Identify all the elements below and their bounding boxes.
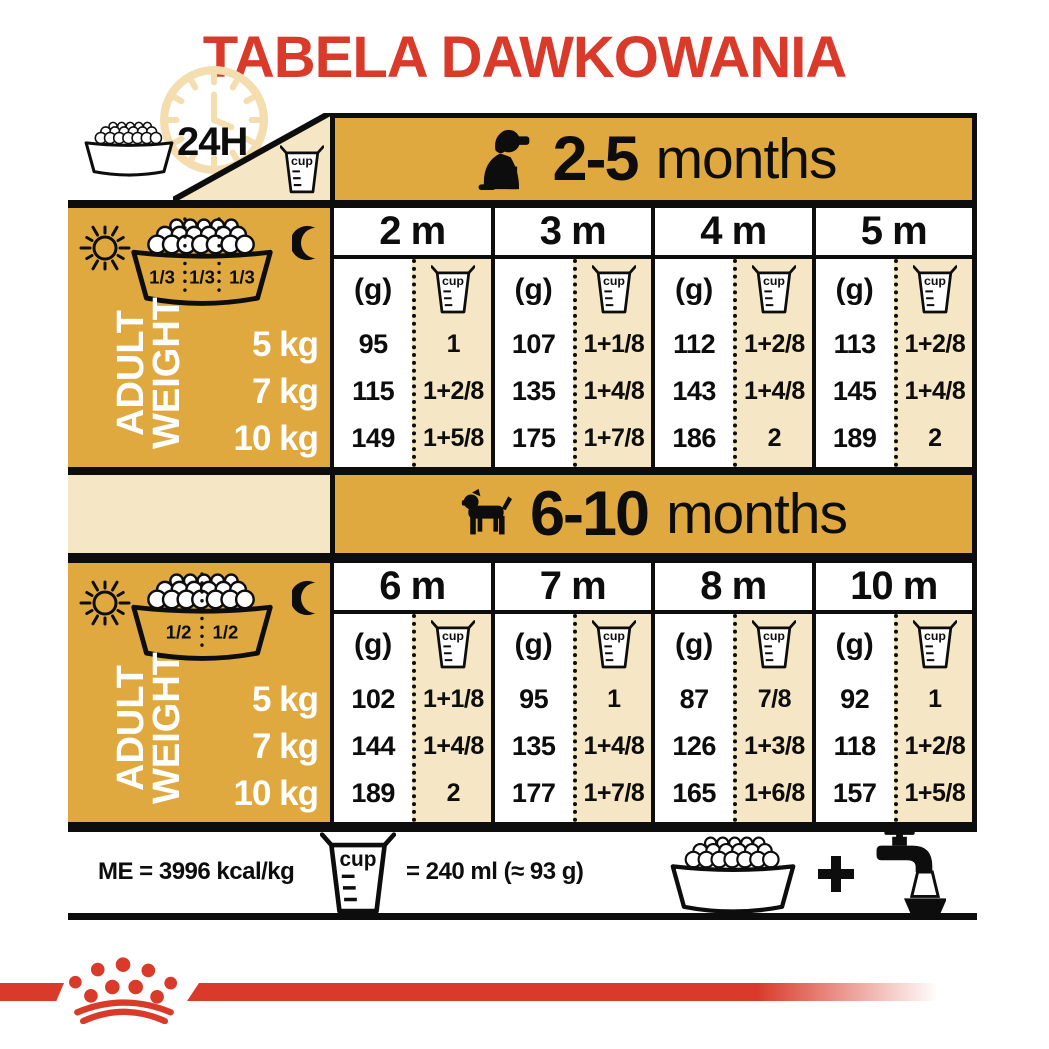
feeding-table-6-10-months: 1/21/2ADULTWEIGHT5 kg7 kg10 kg6 m(g)1021… — [68, 563, 977, 832]
svg-text:cup: cup — [291, 154, 313, 168]
cup-icon: cup — [592, 263, 636, 317]
cups-value: 1+6/8 — [744, 779, 805, 808]
grams-unit-label: (g) — [675, 273, 713, 307]
month-body: (g)102144189 cup1+1/81+4/82 — [334, 614, 491, 822]
grams-subcolumn: (g)87126165 — [655, 614, 733, 822]
daily-ration-label: 24H — [177, 120, 247, 165]
grams-unit-label: (g) — [835, 628, 873, 662]
month-body: (g)95115149 cup11+2/81+5/8 — [334, 259, 491, 467]
moon-icon — [292, 222, 328, 264]
adult-weight-label-line: ADULT — [113, 636, 149, 820]
grams-value: 149 — [351, 423, 395, 454]
weight-row-label: 7 kg — [252, 723, 318, 770]
grams-subcolumn: (g)107135175 — [495, 259, 573, 467]
grams-subcolumn: (g)92118157 — [816, 614, 894, 822]
grams-unit-label: (g) — [675, 628, 713, 662]
cups-value: 1+1/8 — [583, 330, 644, 359]
grams-subcolumn: (g)102144189 — [334, 614, 412, 822]
month-header: 10 m — [816, 563, 973, 614]
royal-canin-crown-logo — [60, 952, 188, 1024]
svg-text:cup: cup — [442, 274, 464, 288]
grams-value: 143 — [672, 376, 716, 407]
cups-value: 1+4/8 — [583, 377, 644, 406]
svg-text:cup: cup — [763, 629, 785, 643]
month-body: (g)92118157 cup11+2/81+5/8 — [816, 614, 973, 822]
cups-value: 1+4/8 — [583, 732, 644, 761]
brand-stripe-right — [187, 983, 978, 1001]
svg-text:1/3: 1/3 — [229, 266, 255, 287]
band-spacer — [68, 475, 330, 553]
cups-subcolumn: cup1+1/81+4/82 — [412, 614, 490, 822]
month-header: 7 m — [495, 563, 652, 614]
food-bowl-24h-icon — [80, 116, 178, 182]
cups-value: 2 — [928, 424, 941, 453]
grams-value: 102 — [351, 684, 395, 715]
moon-icon — [292, 577, 328, 619]
cup-icon: cup — [431, 263, 475, 317]
month-column: 4 m(g)112143186 cup1+2/81+4/82 — [651, 208, 812, 467]
grams-value: 144 — [351, 731, 395, 762]
cups-value: 1+4/8 — [904, 377, 965, 406]
grams-value: 186 — [672, 423, 716, 454]
cups-value: 1+5/8 — [423, 424, 484, 453]
month-column: 2 m(g)95115149 cup11+2/81+5/8 — [330, 208, 491, 467]
month-columns: 6 m(g)102144189 cup1+1/81+4/827 m(g)9513… — [330, 563, 972, 822]
grams-subcolumn: (g)95135177 — [495, 614, 573, 822]
month-header: 6 m — [334, 563, 491, 614]
age-band-6-10-months-row: 6-10 months — [68, 475, 977, 563]
month-columns: 2 m(g)95115149 cup11+2/81+5/83 m(g)10713… — [330, 208, 972, 467]
month-column: 3 m(g)107135175 cup1+1/81+4/81+7/8 — [491, 208, 652, 467]
grams-unit-label: (g) — [354, 628, 392, 662]
cups-subcolumn: cup1+2/81+4/82 — [733, 259, 811, 467]
grams-value: 92 — [840, 684, 869, 715]
grams-value: 115 — [352, 376, 394, 407]
adult-weight-panel: 1/31/31/3ADULTWEIGHT5 kg7 kg10 kg — [68, 208, 330, 467]
food-bowl-icon — [652, 832, 814, 918]
cups-value: 1+2/8 — [423, 377, 484, 406]
month-header: 5 m — [816, 208, 973, 259]
weight-row-label: 5 kg — [252, 676, 318, 723]
cups-value: 1+4/8 — [744, 377, 805, 406]
dog-standing-icon — [460, 486, 512, 542]
grams-value: 112 — [673, 329, 715, 360]
cup-icon-large: cup — [320, 830, 396, 918]
grams-value: 135 — [512, 731, 556, 762]
cups-value: 1+2/8 — [904, 732, 965, 761]
grams-value: 95 — [359, 329, 388, 360]
metabolizable-energy-label: ME = 3996 kcal/kg — [98, 858, 294, 886]
cup-icon: cup — [592, 618, 636, 672]
water-tap-icon — [856, 824, 946, 920]
feeding-table-2-5-months: 1/31/31/3ADULTWEIGHT5 kg7 kg10 kg2 m(g)9… — [68, 200, 977, 475]
month-column: 5 m(g)113145189 cup1+2/81+4/82 — [812, 208, 973, 467]
weight-row-label: 7 kg — [252, 368, 318, 415]
grams-value: 95 — [519, 684, 548, 715]
grams-value: 118 — [834, 731, 876, 762]
svg-text:cup: cup — [763, 274, 785, 288]
cups-value: 2 — [447, 779, 460, 808]
cups-value: 1+2/8 — [744, 330, 805, 359]
grams-value: 165 — [672, 778, 716, 809]
cups-value: 1+7/8 — [583, 424, 644, 453]
svg-text:cup: cup — [924, 629, 946, 643]
age-band-6-10-months: 6-10 months — [330, 475, 977, 553]
cups-subcolumn: cup11+2/81+5/8 — [894, 614, 972, 822]
weight-row-label: 10 kg — [234, 770, 319, 817]
cups-value: 1 — [447, 330, 460, 359]
month-body: (g)113145189 cup1+2/81+4/82 — [816, 259, 973, 467]
adult-weight-label-line: WEIGHT — [149, 281, 185, 465]
svg-text:1/2: 1/2 — [213, 621, 239, 642]
month-body: (g)87126165 cup7/81+3/81+6/8 — [655, 614, 812, 822]
grams-value: 126 — [672, 731, 716, 762]
month-header: 2 m — [334, 208, 491, 259]
plus-icon — [818, 856, 854, 892]
grams-unit-label: (g) — [835, 273, 873, 307]
grams-value: 145 — [833, 376, 877, 407]
adult-weight-label-line: WEIGHT — [149, 636, 185, 820]
weight-row-label: 10 kg — [234, 415, 319, 462]
cups-subcolumn: cup11+4/81+7/8 — [573, 614, 651, 822]
grams-unit-label: (g) — [514, 628, 552, 662]
cups-value: 7/8 — [758, 685, 791, 714]
age-range-label: 6-10 — [530, 478, 648, 550]
month-header: 8 m — [655, 563, 812, 614]
grams-value: 135 — [512, 376, 556, 407]
month-body: (g)107135175 cup1+1/81+4/81+7/8 — [495, 259, 652, 467]
grams-value: 157 — [833, 778, 877, 809]
month-body: (g)112143186 cup1+2/81+4/82 — [655, 259, 812, 467]
cups-value: 1+3/8 — [744, 732, 805, 761]
grams-subcolumn: (g)95115149 — [334, 259, 412, 467]
adult-weight-label-line: ADULT — [113, 281, 149, 465]
month-header: 4 m — [655, 208, 812, 259]
cup-icon: cup — [752, 263, 796, 317]
age-range-label: 2-5 — [553, 123, 638, 195]
feeding-table-sheet: TABELA DAWKOWANIA 24H cup 2-5 months 1/3… — [0, 0, 1049, 1049]
month-column: 7 m(g)95135177 cup11+4/81+7/8 — [491, 563, 652, 822]
grams-value: 177 — [512, 778, 556, 809]
weight-row-label: 5 kg — [252, 321, 318, 368]
age-unit-label: months — [666, 481, 847, 547]
cup-icon: cup — [280, 144, 324, 196]
cups-value: 1+2/8 — [904, 330, 965, 359]
puppy-sitting-icon — [471, 127, 535, 191]
cups-value: 2 — [768, 424, 781, 453]
svg-text:cup: cup — [603, 629, 625, 643]
cups-subcolumn: cup1+1/81+4/81+7/8 — [573, 259, 651, 467]
age-unit-label: months — [656, 126, 837, 192]
grams-value: 189 — [351, 778, 395, 809]
svg-text:cup: cup — [442, 629, 464, 643]
month-column: 8 m(g)87126165 cup7/81+3/81+6/8 — [651, 563, 812, 822]
cups-value: 1+7/8 — [583, 779, 644, 808]
adult-weight-label: ADULTWEIGHT — [113, 636, 195, 820]
grams-subcolumn: (g)112143186 — [655, 259, 733, 467]
cup-equivalence-label: = 240 ml (≈ 93 g) — [406, 858, 583, 886]
month-column: 6 m(g)102144189 cup1+1/81+4/82 — [330, 563, 491, 822]
divider-line — [68, 913, 977, 920]
cup-icon: cup — [913, 618, 957, 672]
grams-unit-label: (g) — [514, 273, 552, 307]
grams-value: 175 — [512, 423, 556, 454]
cups-value: 1 — [607, 685, 620, 714]
grams-subcolumn: (g)113145189 — [816, 259, 894, 467]
brand-stripe-left — [0, 983, 64, 1001]
age-band-2-5-months: 2-5 months — [330, 113, 977, 200]
svg-text:cup: cup — [339, 848, 376, 871]
grams-value: 113 — [834, 329, 876, 360]
cup-icon: cup — [431, 618, 475, 672]
grams-value: 189 — [833, 423, 877, 454]
month-header: 3 m — [495, 208, 652, 259]
grams-value: 107 — [512, 329, 556, 360]
adult-weight-label: ADULTWEIGHT — [113, 281, 195, 465]
grams-unit-label: (g) — [354, 273, 392, 307]
cups-value: 1+4/8 — [423, 732, 484, 761]
month-body: (g)95135177 cup11+4/81+7/8 — [495, 614, 652, 822]
svg-text:cup: cup — [603, 274, 625, 288]
adult-weight-panel: 1/21/2ADULTWEIGHT5 kg7 kg10 kg — [68, 563, 330, 822]
cups-subcolumn: cup7/81+3/81+6/8 — [733, 614, 811, 822]
cup-icon: cup — [913, 263, 957, 317]
cups-subcolumn: cup11+2/81+5/8 — [412, 259, 490, 467]
grams-value: 87 — [680, 684, 709, 715]
cups-value: 1+1/8 — [423, 685, 484, 714]
cups-subcolumn: cup1+2/81+4/82 — [894, 259, 972, 467]
month-column: 10 m(g)92118157 cup11+2/81+5/8 — [812, 563, 973, 822]
cup-icon: cup — [752, 618, 796, 672]
svg-text:cup: cup — [924, 274, 946, 288]
cups-value: 1 — [928, 685, 941, 714]
cups-value: 1+5/8 — [904, 779, 965, 808]
